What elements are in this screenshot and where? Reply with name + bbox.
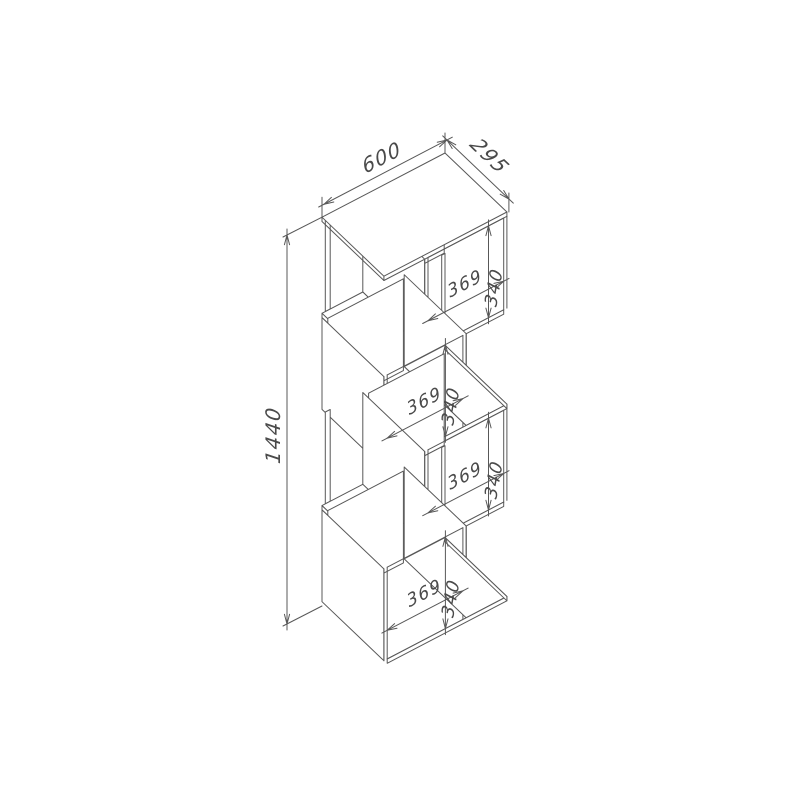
tier3-dim-label-369: 369 xyxy=(445,458,485,495)
dim-label-600: 600 xyxy=(359,136,404,179)
dim-label-295: 295 xyxy=(464,134,515,177)
technical-drawing-page: 6002951440369340369340369340369340 xyxy=(0,0,800,800)
tier4-dim-label-369: 369 xyxy=(405,575,445,612)
isometric-shelf-drawing: 6002951440369340369340369340369340 xyxy=(0,0,800,800)
tier1-dim-label-369: 369 xyxy=(445,266,485,303)
top-board-face xyxy=(322,153,507,276)
tier3-support-strip xyxy=(325,410,330,504)
dim-1440-extension xyxy=(283,217,322,237)
dim-label-1440: 1440 xyxy=(261,405,285,465)
tier1-support-strip xyxy=(325,217,330,311)
